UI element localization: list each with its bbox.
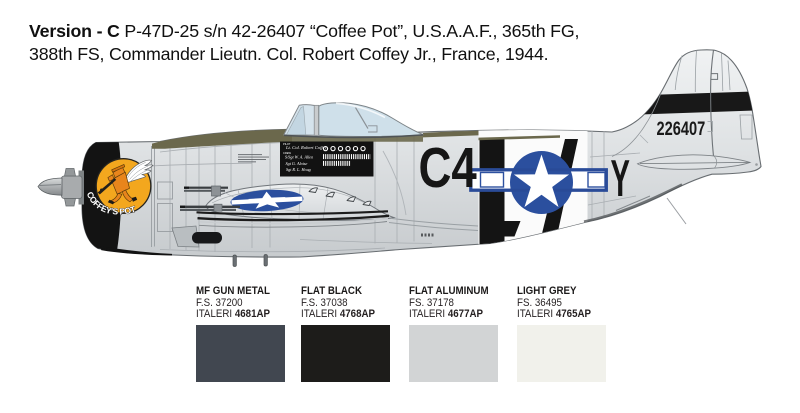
svg-text:C4: C4 (419, 135, 478, 199)
svg-text:Sgt R. L. Houg: Sgt R. L. Houg (286, 167, 311, 172)
svg-text:Lt. Col. Robert Coffey: Lt. Col. Robert Coffey (285, 145, 328, 150)
svg-text:Sgt G. Aloise: Sgt G. Aloise (286, 161, 308, 166)
svg-text:Y: Y (611, 149, 630, 207)
svg-text:S/Sgt W. A. Allen: S/Sgt W. A. Allen (285, 154, 313, 159)
svg-text:226407: 226407 (657, 118, 706, 139)
